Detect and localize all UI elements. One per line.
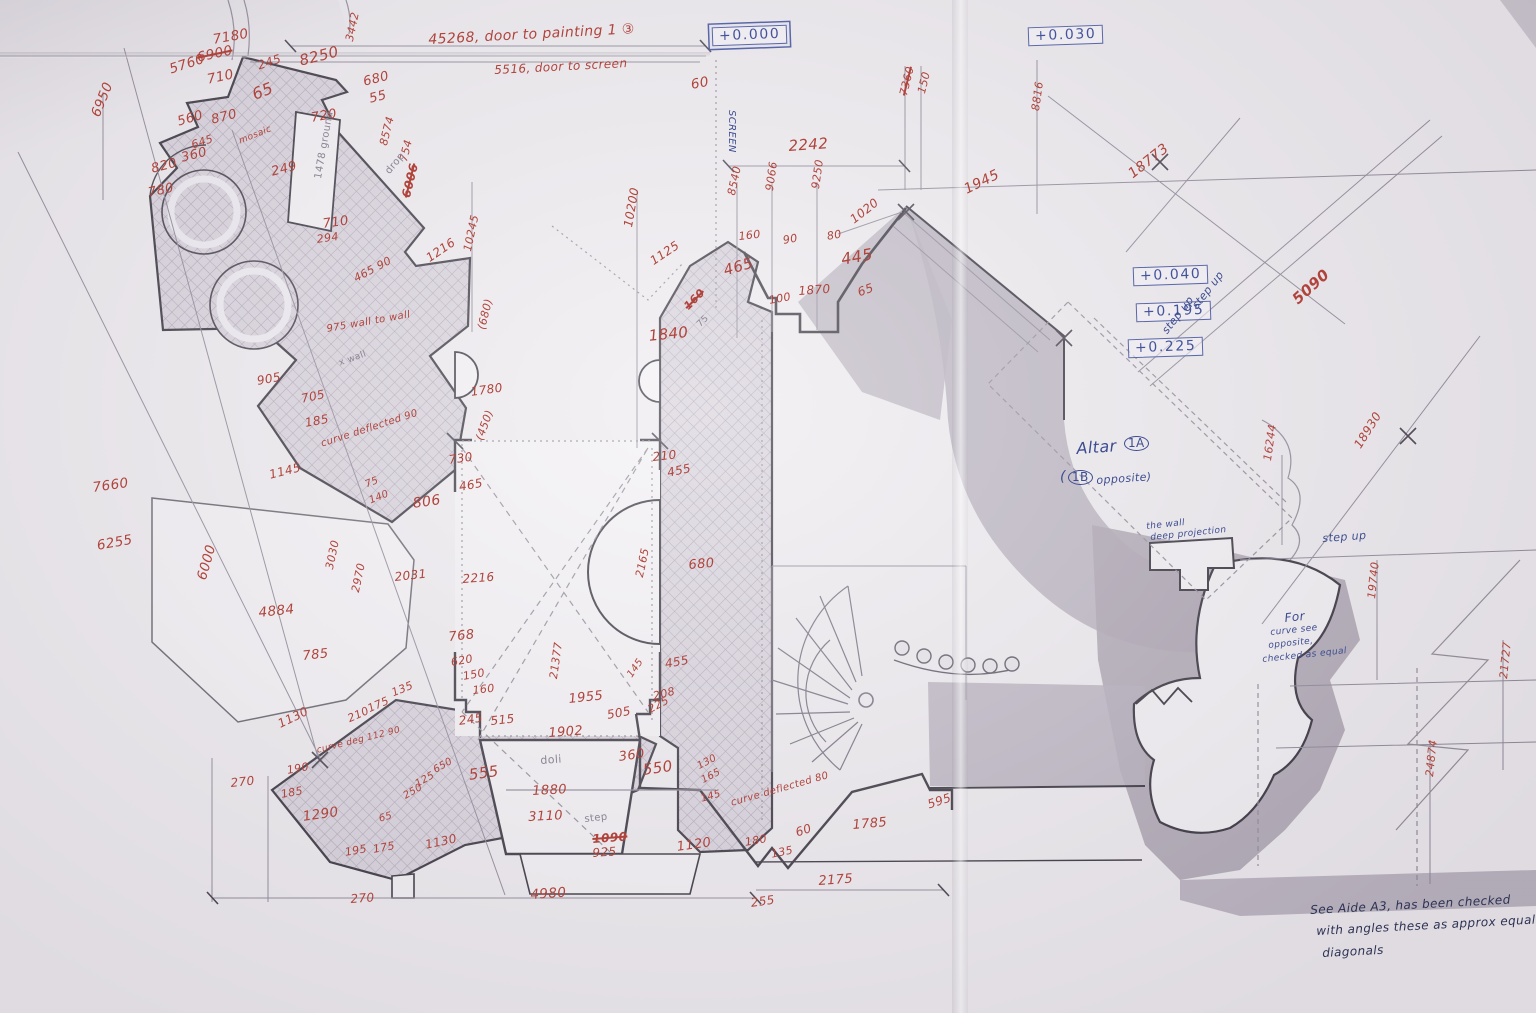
dimension-label: 1090	[592, 831, 628, 845]
dimension-label: 925	[592, 845, 617, 859]
staircase-fan	[772, 586, 873, 770]
dimension-label: 730	[448, 451, 474, 466]
dimension-label: 294	[316, 231, 340, 245]
dimension-label: 555	[468, 764, 500, 783]
note-label: Altar	[1076, 438, 1117, 457]
plan-drawing	[0, 0, 1536, 1013]
dimension-label: 255	[750, 894, 776, 909]
note-label: For	[1284, 610, 1306, 624]
dimension-label: 245	[458, 712, 484, 727]
dimension-label: 270	[350, 891, 375, 905]
dimension-label: 160	[472, 683, 495, 696]
dimension-label: 3110	[528, 809, 563, 824]
dimension-label: 2216	[462, 571, 495, 585]
note-label: 1B	[1068, 470, 1093, 485]
dimension-label: 768	[448, 628, 475, 644]
dimension-label: 1955	[568, 689, 604, 706]
dimension-label: 160	[738, 229, 761, 242]
dimension-label: 710	[322, 214, 350, 230]
dimension-label: 550	[642, 759, 674, 778]
dimension-label: 90	[782, 232, 798, 245]
dimension-label: 806	[412, 493, 442, 511]
dimension-label: 515	[490, 712, 515, 726]
dimension-label: 2175	[818, 873, 854, 888]
note-label: step up	[1322, 530, 1367, 544]
colonnade-columns	[894, 641, 1019, 674]
dimension-label: 55	[368, 89, 388, 106]
level-badge: +0.030	[1028, 25, 1104, 47]
level-badge: +0.000	[712, 25, 788, 47]
pencil-label: doli	[540, 754, 562, 766]
dimension-label: 1840	[648, 325, 689, 344]
note-label: diagonals	[1322, 944, 1384, 959]
south-notch	[392, 874, 414, 898]
dimension-label: 1902	[548, 725, 584, 740]
level-badge: +0.040	[1133, 265, 1209, 287]
dimension-label: 60	[690, 76, 710, 92]
level-badge: +0.225	[1128, 337, 1204, 359]
note-label: 1A	[1124, 436, 1149, 451]
dimension-label: 785	[302, 647, 329, 663]
dimension-label: 210	[652, 448, 677, 462]
dimension-label: 270	[230, 774, 255, 788]
dimension-label: 680	[688, 557, 715, 572]
wall-niche-east	[639, 360, 660, 402]
survey-sketch-sheet: +0.000+0.030+0.040+0.195+0.225 718069005…	[0, 0, 1536, 1013]
dimension-label: 4980	[530, 886, 567, 902]
dimension-label: 1870	[798, 283, 831, 297]
dimension-label: 2242	[788, 136, 829, 154]
note-label: (	[1060, 470, 1066, 484]
dimension-label: 1785	[852, 816, 888, 832]
note-label: SCREEN	[726, 110, 736, 153]
dimension-label: 2031	[394, 568, 427, 583]
dimension-label: 1880	[532, 783, 567, 798]
dimension-label: 80	[826, 228, 842, 241]
